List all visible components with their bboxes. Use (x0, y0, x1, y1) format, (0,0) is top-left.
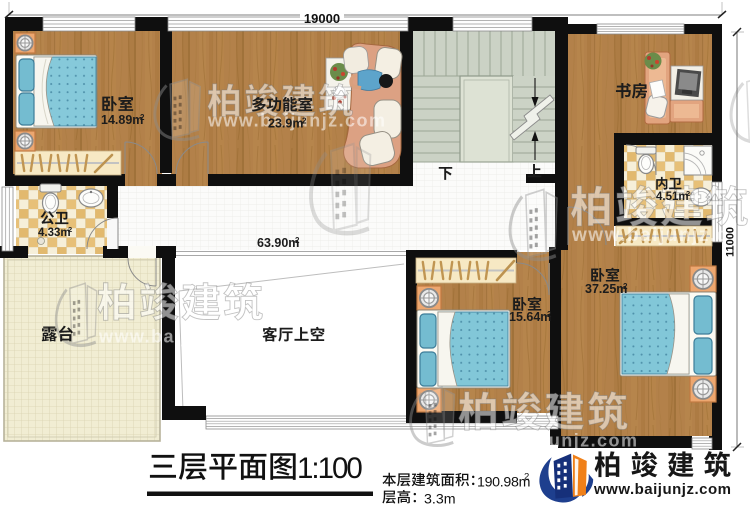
svg-text:4.33m: 4.33m (38, 227, 71, 239)
svg-text:190.98m: 190.98m (477, 475, 530, 491)
svg-text:2: 2 (140, 113, 145, 122)
svg-text:23.9m: 23.9m (268, 117, 303, 131)
svg-text:14.89m: 14.89m (101, 113, 143, 127)
svg-text:www.baijunjz.com: www.baijunjz.com (593, 481, 731, 498)
svg-text:2: 2 (302, 117, 307, 126)
svg-text:www.baijunjz.com: www.baijunjz.com (98, 326, 277, 346)
svg-text:2: 2 (295, 236, 300, 245)
svg-text:www.baijunjz.com: www.baijunjz.com (459, 430, 638, 450)
svg-text:63.90m: 63.90m (257, 236, 299, 250)
svg-text:2: 2 (623, 282, 628, 291)
svg-text:2: 2 (524, 472, 529, 483)
svg-text:2: 2 (686, 189, 690, 198)
svg-text:19000: 19000 (304, 11, 340, 26)
svg-text:3.3m: 3.3m (424, 492, 456, 508)
svg-text:2: 2 (68, 225, 72, 234)
svg-text:11000: 11000 (725, 227, 737, 257)
svg-text:37.25m: 37.25m (585, 282, 627, 296)
svg-text:www.baijunjz.com: www.baijunjz.com (571, 225, 750, 246)
svg-text:4.51m: 4.51m (656, 191, 689, 203)
svg-text:15.64m: 15.64m (509, 310, 551, 324)
svg-text:1:100: 1:100 (297, 452, 362, 485)
svg-text:2: 2 (547, 310, 552, 319)
